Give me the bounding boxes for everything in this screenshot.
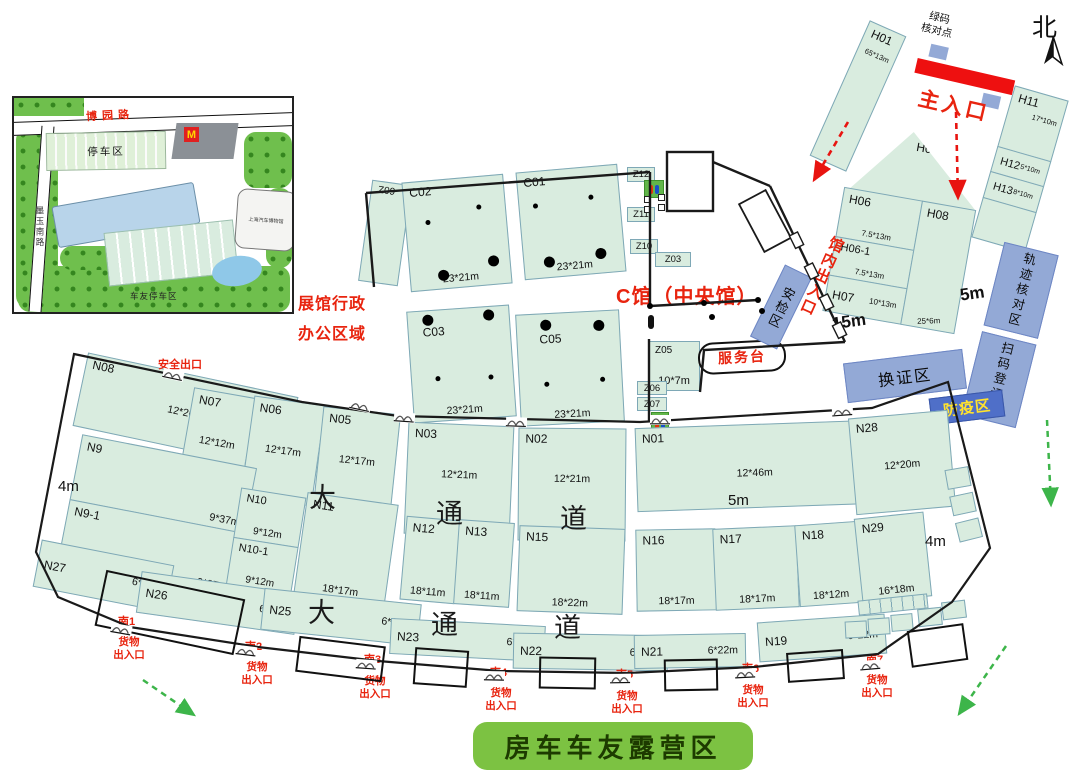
hall-size: 23*21m [521, 405, 623, 422]
gate-label-south5: 南5 [616, 666, 633, 682]
zone-label: 防疫区 [942, 394, 992, 421]
hall-label: C01 [523, 174, 546, 190]
green-code-checkpoint-label: 绿码 核对点 [904, 5, 972, 44]
cargo-line2: 出入口 [98, 649, 160, 662]
hall-label: H06 [848, 192, 872, 210]
hall-label: N07 [198, 392, 222, 410]
hall-size: 6*22m [708, 644, 739, 657]
rv-camp-banner-label: 房车车友露营区 [504, 728, 721, 765]
hall-label: C03 [422, 324, 445, 340]
small-booth [890, 613, 913, 632]
pillar-dot [483, 309, 495, 321]
cargo-entrance-label: 货物出入口 [846, 674, 908, 700]
cargo-entrance-label: 货物出入口 [722, 684, 784, 710]
pillar-dot [588, 194, 593, 199]
cargo-line2: 出入口 [470, 700, 532, 713]
room-z03: Z03 [655, 252, 691, 267]
room-label: Z07 [644, 399, 660, 410]
distance-label: 4m [58, 478, 79, 495]
cargo-entrance-label: 货物出入口 [98, 636, 160, 662]
distance-label: 15m [831, 310, 867, 335]
room-label: Z12 [633, 169, 649, 180]
room-label: Z10 [636, 241, 652, 252]
hall-n29: N29 16*18m [854, 512, 933, 604]
inset-camp-parking-label: 车友停车区 [130, 290, 178, 302]
cargo-line1: 货物 [470, 687, 532, 700]
cargo-line2: 出入口 [344, 688, 406, 701]
hall-size: 23*21m [411, 267, 512, 288]
room-z06: Z06 [637, 381, 667, 395]
passage-char: 道 [560, 497, 587, 536]
inset-road-left-label: 墨玉南路 [34, 206, 46, 248]
pillar-dot [488, 375, 493, 380]
hall-label: H08 [926, 206, 950, 224]
hall-size: 12*46m [637, 463, 872, 483]
inset-green-area [244, 132, 292, 188]
hall-n16: N16 18*17m [635, 528, 716, 611]
hall-label: H07 [831, 287, 855, 305]
zone-label: 轨迹核对区 [1003, 250, 1040, 330]
pillar-dot [533, 203, 538, 208]
hall-label: N02 [525, 432, 547, 446]
hall-size: 25*6m [902, 316, 955, 327]
inset-mc-letter: M [187, 129, 196, 141]
pillar-dot [539, 319, 551, 331]
stairs-block [739, 190, 791, 252]
flow-arrow-green [959, 646, 1006, 714]
inset-road-top-label: 博园路 [86, 106, 135, 124]
pillar-dot [436, 376, 441, 381]
hall-size: 12*17m [248, 440, 319, 462]
female-figure [649, 185, 653, 194]
pillar-dot [600, 377, 605, 382]
cargo-line2: 出入口 [596, 703, 658, 716]
admin-area-label: 展馆行政 办公区域 [298, 290, 382, 351]
zone-badge-exchange: 换证区 [843, 349, 967, 403]
north-label: 北 [1032, 8, 1057, 44]
passage-char: 通 [436, 492, 463, 531]
hall-c05: C05 23*21m [515, 309, 625, 426]
hall-n01: N01 12*46m [635, 420, 875, 512]
hall-label: N05 [329, 411, 352, 427]
cargo-entrance-label: 货物出入口 [470, 687, 532, 713]
room-z07: Z07 [637, 397, 667, 411]
hall-size: 18*17m [637, 594, 715, 607]
inset-green-area [14, 98, 84, 116]
hall-c01: C01 23*21m [515, 164, 626, 280]
cargo-entrance-label: 货物出入口 [226, 661, 288, 687]
door-square-icon [658, 204, 665, 211]
cargo-line1: 货物 [98, 636, 160, 649]
hall-label: H11 [1017, 91, 1041, 110]
pillar-dot [593, 320, 605, 332]
hall-c03: C03 23*21m [406, 305, 517, 424]
room-z10: Z10 [630, 239, 658, 254]
central-hall-room [667, 152, 713, 211]
inset-parking-area: 停车区 [46, 131, 167, 171]
hall-label: N10-1 [238, 542, 269, 559]
distance-label: 5m [728, 492, 749, 509]
hall-size: 10*13m [869, 296, 898, 310]
hall-label: N21 [641, 644, 663, 658]
small-booth [867, 617, 890, 635]
hall-label: N9-1 [73, 504, 101, 523]
hall-size: 12*20m [853, 455, 952, 475]
inset-gray-building [171, 123, 238, 159]
hall-n13: N13 18*11m [453, 519, 515, 608]
rv-camp-banner: 房车车友露营区 [473, 722, 753, 770]
small-booth [949, 492, 977, 517]
hall-label: N15 [526, 529, 548, 544]
hall-label: H05 [915, 140, 939, 158]
flow-arrow-green [1047, 420, 1051, 505]
hall-label: N23 [397, 629, 420, 644]
hall-size: 8*10m [1012, 189, 1033, 201]
hall-size: 12*21m [519, 473, 625, 486]
hall-n17: N17 18*17m [712, 525, 799, 611]
inset-auto-museum: 上海汽车博物馆 [234, 188, 294, 252]
hall-n18: N18 18*12m [794, 521, 864, 607]
small-booth [944, 466, 971, 490]
flow-arrow-green [143, 680, 194, 715]
cargo-entrance-label: 货物出入口 [596, 690, 658, 716]
admin-line2: 办公区域 [298, 320, 382, 350]
hall-size: 23*21m [414, 400, 516, 419]
hall-label: N19 [765, 633, 788, 649]
safety-exit-label: 安全出口 [145, 356, 215, 372]
cargo-line2: 出入口 [226, 674, 288, 687]
passage-char: 大 [309, 476, 336, 515]
overview-inset-map: 博园路 墨玉南路 停车区 M 上海汽车博物馆 车友停车区 [12, 96, 294, 314]
hall-label: N22 [520, 644, 542, 658]
service-desk-label: 服务台 [718, 346, 767, 368]
cargo-entrance-label: 货物出入口 [344, 675, 406, 701]
hall-label: N17 [719, 532, 742, 547]
bollard-icon [648, 315, 654, 329]
door-notch [789, 232, 803, 249]
hall-label: N16 [642, 533, 664, 547]
hall-n28: N28 12*20m [848, 410, 956, 515]
pillar-dot [709, 314, 715, 320]
cargo-line1: 货物 [226, 661, 288, 674]
hall-label: H12 [999, 155, 1022, 172]
hall-label: N01 [642, 431, 664, 446]
hall-label: N25 [269, 603, 292, 619]
passage-char: 大 [308, 591, 335, 630]
inset-mcdonalds-logo: M [184, 127, 199, 142]
cargo-line1: 货物 [846, 674, 908, 687]
cargo-line1: 货物 [722, 684, 784, 697]
gate-label-south2: 南2 [245, 638, 262, 654]
passage-char: 道 [554, 606, 581, 645]
hall-label: H13 [992, 181, 1015, 198]
pillar-dot [544, 382, 549, 387]
hall-size: 18*17m [716, 591, 798, 607]
cargo-line2: 出入口 [846, 687, 908, 700]
hall-label: N12 [412, 520, 435, 536]
door-square-icon [644, 196, 651, 203]
hall-label: N28 [855, 420, 878, 436]
pillar-dot [488, 255, 500, 267]
hall-label: N29 [861, 520, 884, 536]
door-square-icon [658, 194, 665, 201]
hall-label: Z09 [377, 185, 396, 198]
door-square-icon [644, 206, 651, 213]
entrance-booth [928, 44, 948, 61]
hall-label: H01 [869, 27, 895, 49]
inset-parking-label: 停车区 [87, 143, 125, 159]
hall-label: N18 [801, 527, 824, 543]
gate-label-south3: 南3 [364, 651, 381, 667]
hall-size: 18*11m [454, 588, 509, 604]
admin-line1: 展馆行政 [298, 290, 382, 320]
small-booth [845, 620, 868, 638]
loading-dock [908, 624, 967, 666]
cargo-line1: 货物 [596, 690, 658, 703]
hall-size: 18*11m [401, 584, 455, 601]
small-booth [917, 607, 943, 627]
hall-c02: C02 23*21m [401, 174, 512, 292]
pillar-dot [476, 205, 481, 210]
hall-size: 12*17m [318, 451, 395, 471]
gate-label-south7: 南7 [866, 651, 883, 667]
hall-n21: N21 6*22m [634, 633, 747, 669]
male-figure [655, 185, 659, 194]
small-booth [941, 600, 967, 621]
distance-label: 4m [925, 533, 946, 550]
hall-label: N27 [43, 558, 67, 576]
cargo-line2: 出入口 [722, 697, 784, 710]
hall-label: N13 [465, 524, 488, 540]
hall-size: 23*21m [525, 255, 626, 276]
gate-label-south6: 南6 [742, 660, 759, 676]
hall-size: 5*10m [1019, 163, 1040, 175]
small-booth [955, 517, 983, 542]
zone-track-check: 轨迹核对区 [984, 242, 1059, 339]
room-label: Z03 [665, 254, 681, 265]
room-label: Z05 [655, 345, 672, 356]
hall-size: 18*12m [800, 587, 863, 603]
hall-size: 12*21m [407, 467, 511, 484]
hall-size: 12*12m [185, 432, 248, 455]
hall-size: 17*10m [1031, 112, 1058, 128]
hall-label: N03 [415, 426, 438, 441]
zone-label: 换证区 [877, 361, 934, 391]
hall-label: N06 [259, 400, 283, 417]
room-label: Z06 [644, 383, 660, 394]
hall-n15: N15 18*22m [517, 525, 626, 615]
passage-char: 通 [431, 603, 458, 642]
central-hall-title: C馆（中央馆） [616, 280, 786, 309]
hall-label: N26 [145, 586, 169, 603]
hall-label: C02 [409, 184, 432, 200]
hall-label: C05 [539, 331, 562, 346]
inset-museum-label: 上海汽车博物馆 [248, 215, 283, 224]
hall-label: N10 [246, 492, 268, 507]
hall-door-icon [832, 406, 854, 417]
hall-size: 65*13m [863, 46, 890, 65]
cargo-line1: 货物 [344, 675, 406, 688]
gate-label-south4: 南4 [490, 664, 507, 680]
distance-label: 5m [959, 282, 986, 305]
hall-label: N08 [91, 358, 115, 376]
gate-label-south1: 南1 [118, 613, 135, 629]
pillar-dot [425, 220, 430, 225]
hall-label: N9 [86, 440, 104, 457]
